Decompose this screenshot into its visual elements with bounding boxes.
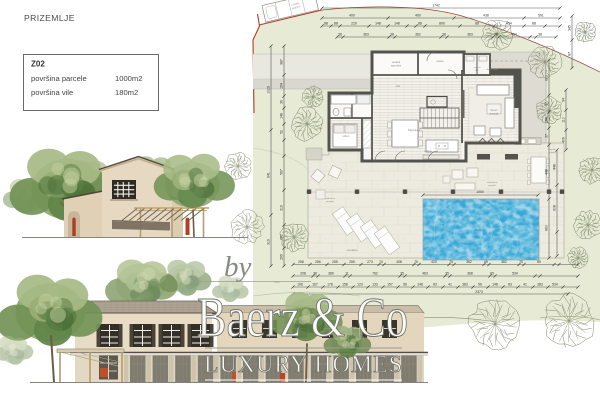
svg-text:spremiste: spremiste bbox=[391, 65, 402, 68]
svg-text:35: 35 bbox=[445, 271, 449, 275]
svg-text:408: 408 bbox=[396, 260, 402, 264]
svg-text:38: 38 bbox=[338, 32, 342, 36]
svg-text:167: 167 bbox=[312, 282, 318, 286]
svg-text:94: 94 bbox=[561, 98, 565, 102]
svg-text:96: 96 bbox=[478, 282, 482, 286]
svg-text:383: 383 bbox=[462, 282, 468, 286]
svg-text:52: 52 bbox=[279, 130, 283, 134]
svg-text:382: 382 bbox=[501, 260, 507, 264]
svg-text:41: 41 bbox=[523, 282, 527, 286]
svg-text:148: 148 bbox=[375, 21, 381, 25]
svg-text:454: 454 bbox=[506, 21, 512, 25]
svg-text:LUXURY HOMES: LUXURY HOMES bbox=[204, 351, 403, 378]
svg-text:75: 75 bbox=[449, 260, 453, 264]
svg-text:38: 38 bbox=[538, 32, 542, 36]
svg-text:148: 148 bbox=[279, 113, 283, 119]
svg-text:454: 454 bbox=[511, 32, 517, 36]
svg-text:534: 534 bbox=[552, 282, 558, 286]
svg-text:38: 38 bbox=[313, 271, 317, 275]
svg-text:1029: 1029 bbox=[266, 86, 270, 94]
svg-text:ostava: ostava bbox=[436, 60, 444, 63]
svg-text:255: 255 bbox=[349, 260, 355, 264]
svg-text:boravak: boravak bbox=[490, 113, 499, 116]
svg-text:83: 83 bbox=[508, 282, 512, 286]
svg-text:382: 382 bbox=[466, 260, 472, 264]
svg-text:88: 88 bbox=[475, 21, 479, 25]
svg-text:Mlllso: Mlllso bbox=[274, 282, 280, 284]
svg-text:148: 148 bbox=[417, 282, 423, 286]
svg-text:258: 258 bbox=[298, 260, 304, 264]
svg-text:273: 273 bbox=[367, 260, 373, 264]
svg-text:123: 123 bbox=[357, 282, 363, 286]
svg-text:133: 133 bbox=[372, 282, 378, 286]
svg-text:Baerz & Co: Baerz & Co bbox=[197, 287, 408, 349]
svg-text:1742: 1742 bbox=[432, 3, 440, 7]
svg-text:641: 641 bbox=[266, 172, 270, 178]
svg-text:501: 501 bbox=[538, 13, 544, 17]
svg-text:229: 229 bbox=[351, 21, 357, 25]
svg-text:88: 88 bbox=[532, 21, 536, 25]
svg-text:282: 282 bbox=[279, 234, 283, 240]
svg-text:blagovaona: blagovaona bbox=[408, 130, 421, 132]
svg-text:400: 400 bbox=[415, 13, 421, 17]
svg-text:406: 406 bbox=[561, 137, 565, 143]
svg-text:157: 157 bbox=[387, 282, 393, 286]
svg-text:180m2: 180m2 bbox=[115, 88, 138, 97]
svg-text:463: 463 bbox=[422, 271, 428, 275]
svg-text:vanjski: vanjski bbox=[474, 67, 481, 69]
svg-text:400: 400 bbox=[349, 13, 355, 17]
svg-text:69: 69 bbox=[537, 260, 541, 264]
svg-text:38: 38 bbox=[442, 32, 446, 36]
svg-text:natkrivena: natkrivena bbox=[487, 181, 498, 184]
svg-text:35: 35 bbox=[400, 271, 404, 275]
svg-text:37: 37 bbox=[544, 134, 548, 138]
svg-text:148: 148 bbox=[492, 282, 498, 286]
svg-text:363: 363 bbox=[363, 32, 369, 36]
svg-text:Bazen 1: Bazen 1 bbox=[475, 228, 485, 232]
svg-text:by: by bbox=[224, 251, 252, 283]
svg-text:148: 148 bbox=[394, 21, 400, 25]
svg-text:36: 36 bbox=[279, 100, 283, 104]
svg-text:178: 178 bbox=[327, 282, 333, 286]
svg-text:suncaliste: suncaliste bbox=[347, 249, 358, 252]
svg-text:Z02: Z02 bbox=[31, 60, 45, 69]
svg-text:pergola: pergola bbox=[488, 184, 496, 187]
svg-text:kuhinja: kuhinja bbox=[549, 152, 557, 154]
svg-text:255: 255 bbox=[332, 260, 338, 264]
svg-text:438: 438 bbox=[483, 13, 489, 17]
svg-text:420: 420 bbox=[431, 260, 437, 264]
svg-text:38: 38 bbox=[494, 32, 498, 36]
svg-text:362: 362 bbox=[415, 32, 421, 36]
svg-text:pergola: pergola bbox=[326, 200, 334, 203]
svg-text:83: 83 bbox=[433, 282, 437, 286]
svg-text:383: 383 bbox=[537, 282, 543, 286]
svg-text:110: 110 bbox=[561, 117, 565, 123]
svg-text:37: 37 bbox=[544, 102, 548, 106]
svg-text:WC: WC bbox=[475, 70, 479, 72]
svg-text:158: 158 bbox=[342, 282, 348, 286]
svg-text:345: 345 bbox=[567, 25, 571, 31]
svg-text:kuhinja: kuhinja bbox=[424, 151, 432, 153]
svg-text:površina parcele: površina parcele bbox=[31, 74, 87, 83]
svg-text:567: 567 bbox=[279, 169, 283, 175]
svg-text:534: 534 bbox=[512, 271, 518, 275]
svg-text:154: 154 bbox=[279, 83, 283, 89]
svg-text:88: 88 bbox=[418, 21, 422, 25]
svg-text:75: 75 bbox=[519, 260, 523, 264]
svg-text:2373: 2373 bbox=[475, 290, 483, 294]
svg-text:natkrivena: natkrivena bbox=[325, 197, 336, 200]
svg-text:319: 319 bbox=[266, 239, 270, 245]
svg-text:389: 389 bbox=[328, 271, 334, 275]
svg-text:vanjska: vanjska bbox=[548, 149, 556, 151]
svg-text:površina vile: površina vile bbox=[31, 88, 73, 97]
svg-text:762: 762 bbox=[372, 271, 378, 275]
svg-text:256: 256 bbox=[315, 260, 321, 264]
svg-text:188: 188 bbox=[544, 117, 548, 123]
svg-text:PRIZEMLJE: PRIZEMLJE bbox=[24, 13, 75, 23]
svg-text:319: 319 bbox=[279, 205, 283, 211]
svg-text:448: 448 bbox=[552, 164, 556, 170]
svg-text:88: 88 bbox=[334, 21, 338, 25]
svg-text:41: 41 bbox=[448, 282, 452, 286]
svg-text:448: 448 bbox=[544, 169, 548, 175]
svg-text:1000m2: 1000m2 bbox=[115, 74, 142, 83]
svg-text:387: 387 bbox=[279, 59, 283, 65]
svg-text:88: 88 bbox=[324, 21, 328, 25]
svg-text:soba 1: soba 1 bbox=[343, 136, 351, 138]
svg-text:69: 69 bbox=[484, 260, 488, 264]
svg-text:69: 69 bbox=[490, 271, 494, 275]
svg-text:38: 38 bbox=[390, 32, 394, 36]
svg-text:269: 269 bbox=[279, 254, 283, 260]
svg-text:70: 70 bbox=[379, 260, 383, 264]
svg-text:660: 660 bbox=[544, 225, 548, 231]
svg-text:87: 87 bbox=[567, 52, 571, 56]
svg-text:363: 363 bbox=[467, 32, 473, 36]
svg-text:368: 368 bbox=[467, 271, 473, 275]
svg-text:208: 208 bbox=[300, 271, 306, 275]
svg-text:800: 800 bbox=[439, 21, 445, 25]
svg-text:1000: 1000 bbox=[476, 190, 484, 194]
svg-text:603: 603 bbox=[544, 75, 548, 81]
svg-text:11: 11 bbox=[345, 271, 349, 275]
svg-text:96: 96 bbox=[403, 282, 407, 286]
svg-text:ulazni trijem: ulazni trijem bbox=[486, 68, 498, 71]
svg-text:198: 198 bbox=[297, 282, 303, 286]
svg-text:75: 75 bbox=[414, 260, 418, 264]
svg-text:608: 608 bbox=[552, 205, 556, 211]
